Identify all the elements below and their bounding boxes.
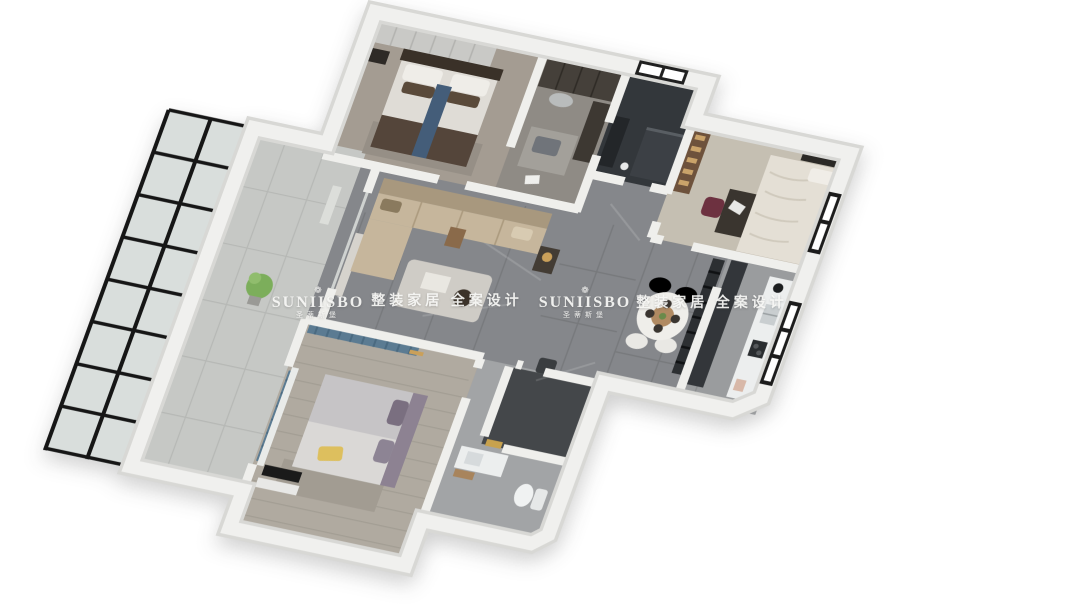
- apartment: [32, 0, 873, 608]
- yellow-pillow: [317, 446, 344, 461]
- floorplan-render: [0, 0, 1080, 608]
- floorplan-stage: ❁ SUNIISBO 圣蒂斯堡 整装家居 全案设计 ❁ SUNIISBO 圣蒂斯…: [0, 0, 1080, 608]
- paper-on-floor: [525, 175, 540, 184]
